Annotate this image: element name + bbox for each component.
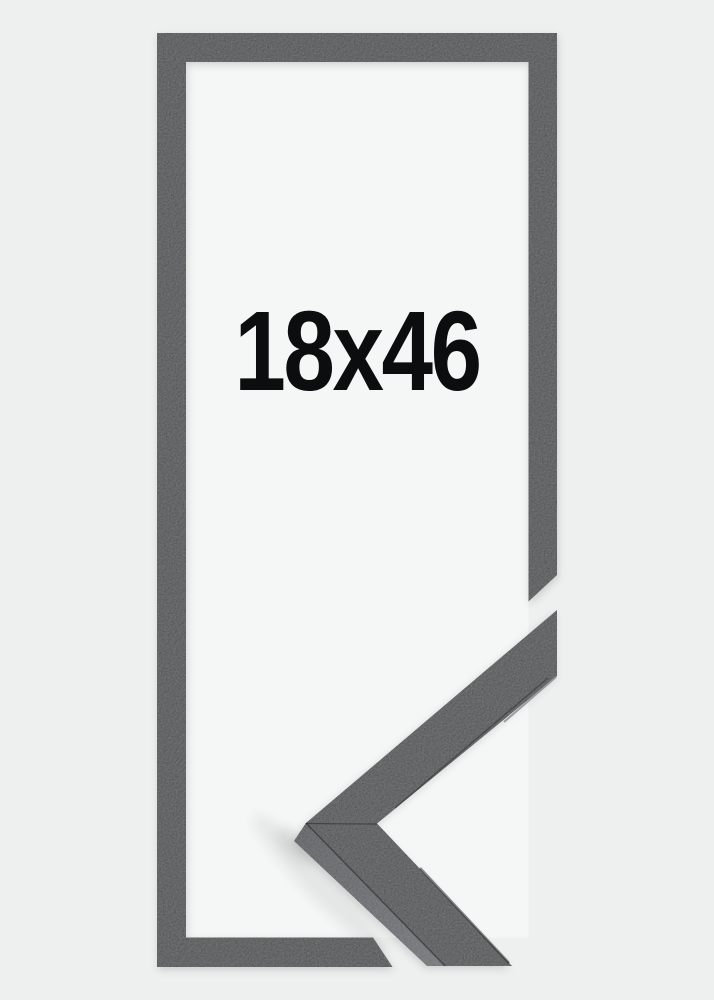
size-label: 18x46 <box>234 287 479 414</box>
frame-border-right-cut <box>529 33 558 602</box>
frame-border-bottom-cut <box>157 938 393 968</box>
frame-product-image: 18x46 <box>0 0 714 1000</box>
frame-border-left <box>157 33 186 967</box>
mitre-seam-line <box>306 824 377 825</box>
product-photo: 18x46 <box>0 0 714 1000</box>
frame-border-top <box>157 33 557 62</box>
